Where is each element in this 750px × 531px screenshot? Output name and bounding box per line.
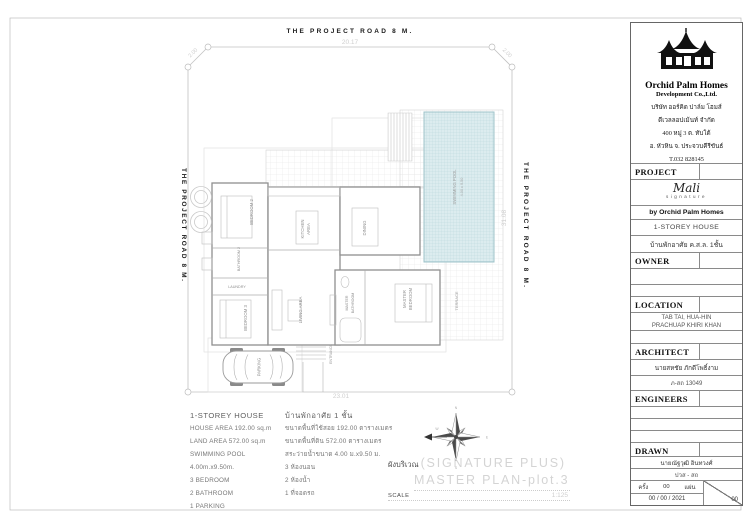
room-label-kitchen-2: AREA [306,223,311,235]
sheet-number-cell: 00 [703,481,742,505]
scale-value: 1:125 [552,492,568,499]
pool-label: SWIMMING POOL [452,169,457,205]
watermark-line2: MASTER PLAN-plot.3 [414,473,569,487]
owner-label: OWNER [631,253,699,268]
address-line: 400 หมู่ 3 ต. ทับใต้ [631,127,742,140]
architect-reg-no: ภ-สถ 13049 [631,376,742,391]
drawn-qualification: ปวส - สถ [631,469,742,481]
north-arrow [424,434,432,441]
drawing-sheet: THE PROJECT ROAD 8 M. THE PROJECT ROAD 8… [0,0,750,531]
yard-circles [191,187,212,233]
copies-label: ครั้ง [638,482,648,492]
room-label-dining: DINING [362,220,367,236]
company-logo [650,27,724,75]
location-line2: PRACHUAP KHIRI KHAN [652,322,721,330]
svg-text:E: E [486,436,489,440]
brand-script: Mali [631,182,742,194]
room-label-entrance: ENTRANCE [329,344,333,364]
entrance-steps [296,347,326,392]
engineers-blank-row [631,419,742,431]
caption-thai: ผังบริเวณ [388,459,419,471]
spec-line: HOUSE AREA 192.00 sq.m [190,422,285,435]
spec-line: 2 ห้องน้ำ [285,474,405,487]
owner-header: OWNER [631,253,742,269]
drawn-name: นายณัฐวุฒิ อินทวงศ์ [631,457,742,469]
engineers-blank-row [631,407,742,419]
architect-header: ARCHITECT [631,344,742,360]
copies-count: 00 [663,484,669,490]
spec-line: ขนาดพื้นที่ใช้สอย 192.00 ตารางเมตร [285,422,405,435]
engineers-label: ENGINEERS [631,391,699,406]
spec-line: 3 ห้องนอน [285,461,405,474]
location-line1: TAB TAI, HUA-HIN [661,314,711,322]
engineers-blank-row [631,431,742,443]
room-label-laundry: LAUNDRY [228,285,246,289]
watermark-line1: (SIGNATURE PLUS) [421,456,566,470]
address-line: อ. หัวหิน จ. ประจวบคีรีขันธ์ [631,140,742,153]
dim-bottom: 23.01 [333,393,350,400]
address-line: บริษัท ออร์คิด ปาล์ม โฮมส์ [631,101,742,114]
room-label-mbath-2: BATHROOM [351,293,355,314]
road-label-right: THE PROJECT ROAD 8 M. [522,162,529,289]
car-top-view: PARKING [223,348,293,386]
room-label-bedroom2: BEDROOM 2 [249,199,254,225]
spec-line: 2 BATHROOM [190,487,285,500]
copies-row: ครั้ง 00 แผ่น [631,481,703,494]
swimming-pool [424,112,494,262]
room-label-mbath-1: MASTER [345,295,349,310]
project-header: PROJECT [631,164,742,180]
location-header: LOCATION [631,297,742,313]
spec-line: LAND AREA 572.00 sq.m [190,435,285,448]
company-subtitle: Development Co.,Ltd. [631,91,742,98]
spec-line: บ้านพักอาศัย 1 ชั้น [285,409,405,422]
location-label: LOCATION [631,297,699,312]
project-name: 1-STOREY HOUSE [631,220,742,236]
specs-english: 1-STOREY HOUSE HOUSE AREA 192.00 sq.m LA… [190,409,285,513]
room-label-bedroom3: BEDROOM 3 [243,305,248,331]
owner-blank-row [631,285,742,297]
spec-line: ขนาดพื้นที่ดิน 572.00 ตารางเมตร [285,435,405,448]
spec-line: สระว่ายน้ำขนาด 4.00 ม.x9.50 ม. [285,448,405,461]
address-line: ดีเวลลอปเม้นท์ จำกัด [631,114,742,127]
road-label-top: THE PROJECT ROAD 8 M. [286,28,413,35]
spec-line: SWIMMING POOL 4.00m.x9.50m. [190,448,285,474]
drawn-label: DRAWN [631,443,699,456]
dim-top: 20.17 [342,39,359,46]
project-name-th: บ้านพักอาศัย ค.ส.ล. 1ชั้น [631,236,742,253]
room-label-master-1: MASTER [402,290,407,308]
spec-line: 1-STOREY HOUSE [190,409,285,422]
svg-text:W: W [435,427,439,431]
revision-block: ครั้ง 00 แผ่น 00 / 00 / 2021 00 [631,481,742,505]
company-block: Orchid Palm Homes Development Co.,Ltd. บ… [631,23,742,164]
owner-blank-row [631,269,742,285]
brand-by-line: by Orchid Palm Homes [631,206,742,220]
architect-name: นายสหชัย ภักดีโพธิ์งาม [631,360,742,376]
title-block: Orchid Palm Homes Development Co.,Ltd. บ… [630,22,743,506]
scale-label: SCALE [388,493,410,499]
svg-text:N: N [455,406,458,410]
project-label: PROJECT [631,164,699,179]
specs-thai: บ้านพักอาศัย 1 ชั้น ขนาดพื้นที่ใช้สอย 19… [285,409,405,500]
architect-label: ARCHITECT [631,344,699,359]
spec-line: 1 PARKING [190,500,285,513]
brand-signature: signature [631,194,742,199]
road-label-left: THE PROJECT ROAD 8 M. [180,168,187,283]
drawn-header: DRAWN [631,443,742,457]
room-label-living: LIVING AREA [298,296,303,323]
company-name: Orchid Palm Homes [631,81,742,91]
sheet-word: แผ่น [684,482,695,492]
room-label-kitchen-1: KITCHEN [300,220,305,239]
room-label-bathroom2: BATHROOM 2 [237,247,241,271]
room-label-master-2: BEDROOM [408,287,413,310]
date-value: 00 / 00 / 2021 [631,494,703,506]
spec-line: 3 BEDROOM [190,474,285,487]
company-phone: T.032 828145 [631,153,742,164]
room-label-parking: PARKING [257,358,262,377]
company-address: บริษัท ออร์คิด ปาล์ม โฮมส์ ดีเวลลอปเม้นท… [631,101,742,164]
location-blank-row [631,331,742,344]
brand-block: Mali signature [631,180,742,206]
pergola [388,113,412,161]
pool-size-label: 4.00 x 9.50 [460,178,464,197]
engineers-header: ENGINEERS [631,391,742,407]
sheet-number: 00 [731,497,738,503]
location-value: TAB TAI, HUA-HIN PRACHUAP KHIRI KHAN [631,313,742,331]
room-label-terrace: TERRACE [454,291,459,310]
drawing-caption: ผังบริเวณ (SIGNATURE PLUS) MASTER PLAN-p… [388,456,570,501]
spec-line: 1 ที่จอดรถ [285,487,405,500]
